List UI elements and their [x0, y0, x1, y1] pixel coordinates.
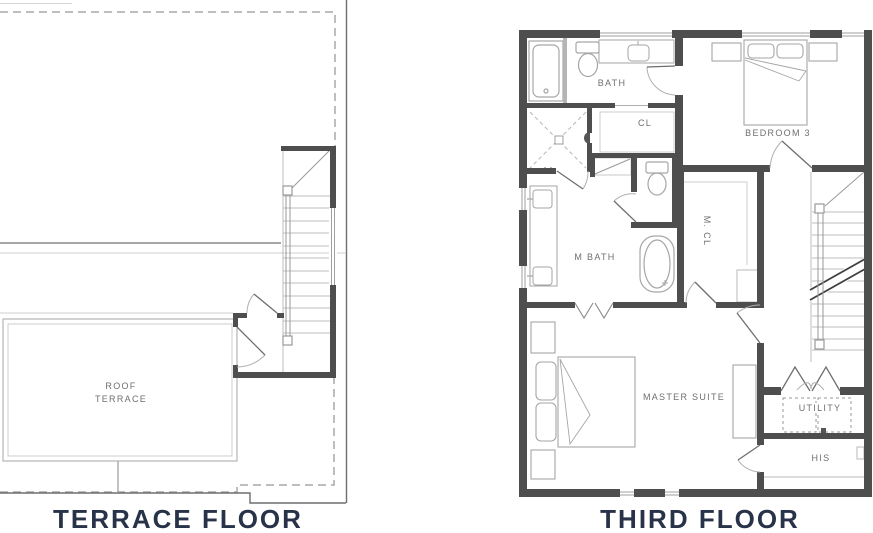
terrace-boundary: [0, 0, 347, 503]
room-label-roof-terrace-line1: ROOF: [105, 381, 136, 391]
toilet-wc: [646, 162, 668, 195]
room-label-his-closet: HIS: [812, 453, 831, 463]
terrace-doors: [237, 294, 277, 367]
terrace-roof-outline: [0, 12, 335, 492]
floorplan-sheet: ROOF TERRACE BATH CL BEDROOM 3 M BATH M.…: [0, 0, 873, 533]
room-label-master-suite: MASTER SUITE: [643, 392, 725, 402]
room-label-bedroom3: BEDROOM 3: [745, 128, 811, 138]
linen-closet: [594, 158, 631, 175]
stair-railing: [283, 150, 330, 345]
shower: [530, 112, 590, 172]
bathtub: [529, 37, 567, 103]
dresser: [733, 365, 756, 438]
third-floor-title: THIRD FLOOR: [600, 504, 800, 533]
room-label-utility: UTILITY: [797, 403, 844, 413]
freestanding-tub: [640, 236, 674, 292]
bed-master: [536, 357, 635, 447]
room-label-master-bath: M BATH: [574, 252, 615, 262]
bed-bedroom3: [744, 40, 807, 125]
third-floor-walls: [519, 30, 872, 497]
toilet-bath: [576, 42, 599, 77]
floorplan-drawing: [0, 0, 873, 533]
vanity-master-bath: [527, 186, 557, 286]
room-label-bath: BATH: [598, 78, 627, 88]
utility-valve: [821, 428, 826, 433]
terrace-floor-title: TERRACE FLOOR: [53, 504, 303, 533]
master-closet-shelving: [684, 182, 760, 302]
third-floor-windows: [519, 30, 864, 497]
stairwell-window: [329, 208, 337, 285]
room-label-closet: CL: [638, 118, 652, 128]
stairs-third-floor: [810, 172, 865, 362]
vanity-bath: [599, 40, 674, 63]
terrace-stairwell: [233, 146, 337, 378]
room-label-master-closet: M. CL: [702, 216, 712, 247]
room-label-roof-terrace-line2: TERRACE: [95, 394, 147, 404]
